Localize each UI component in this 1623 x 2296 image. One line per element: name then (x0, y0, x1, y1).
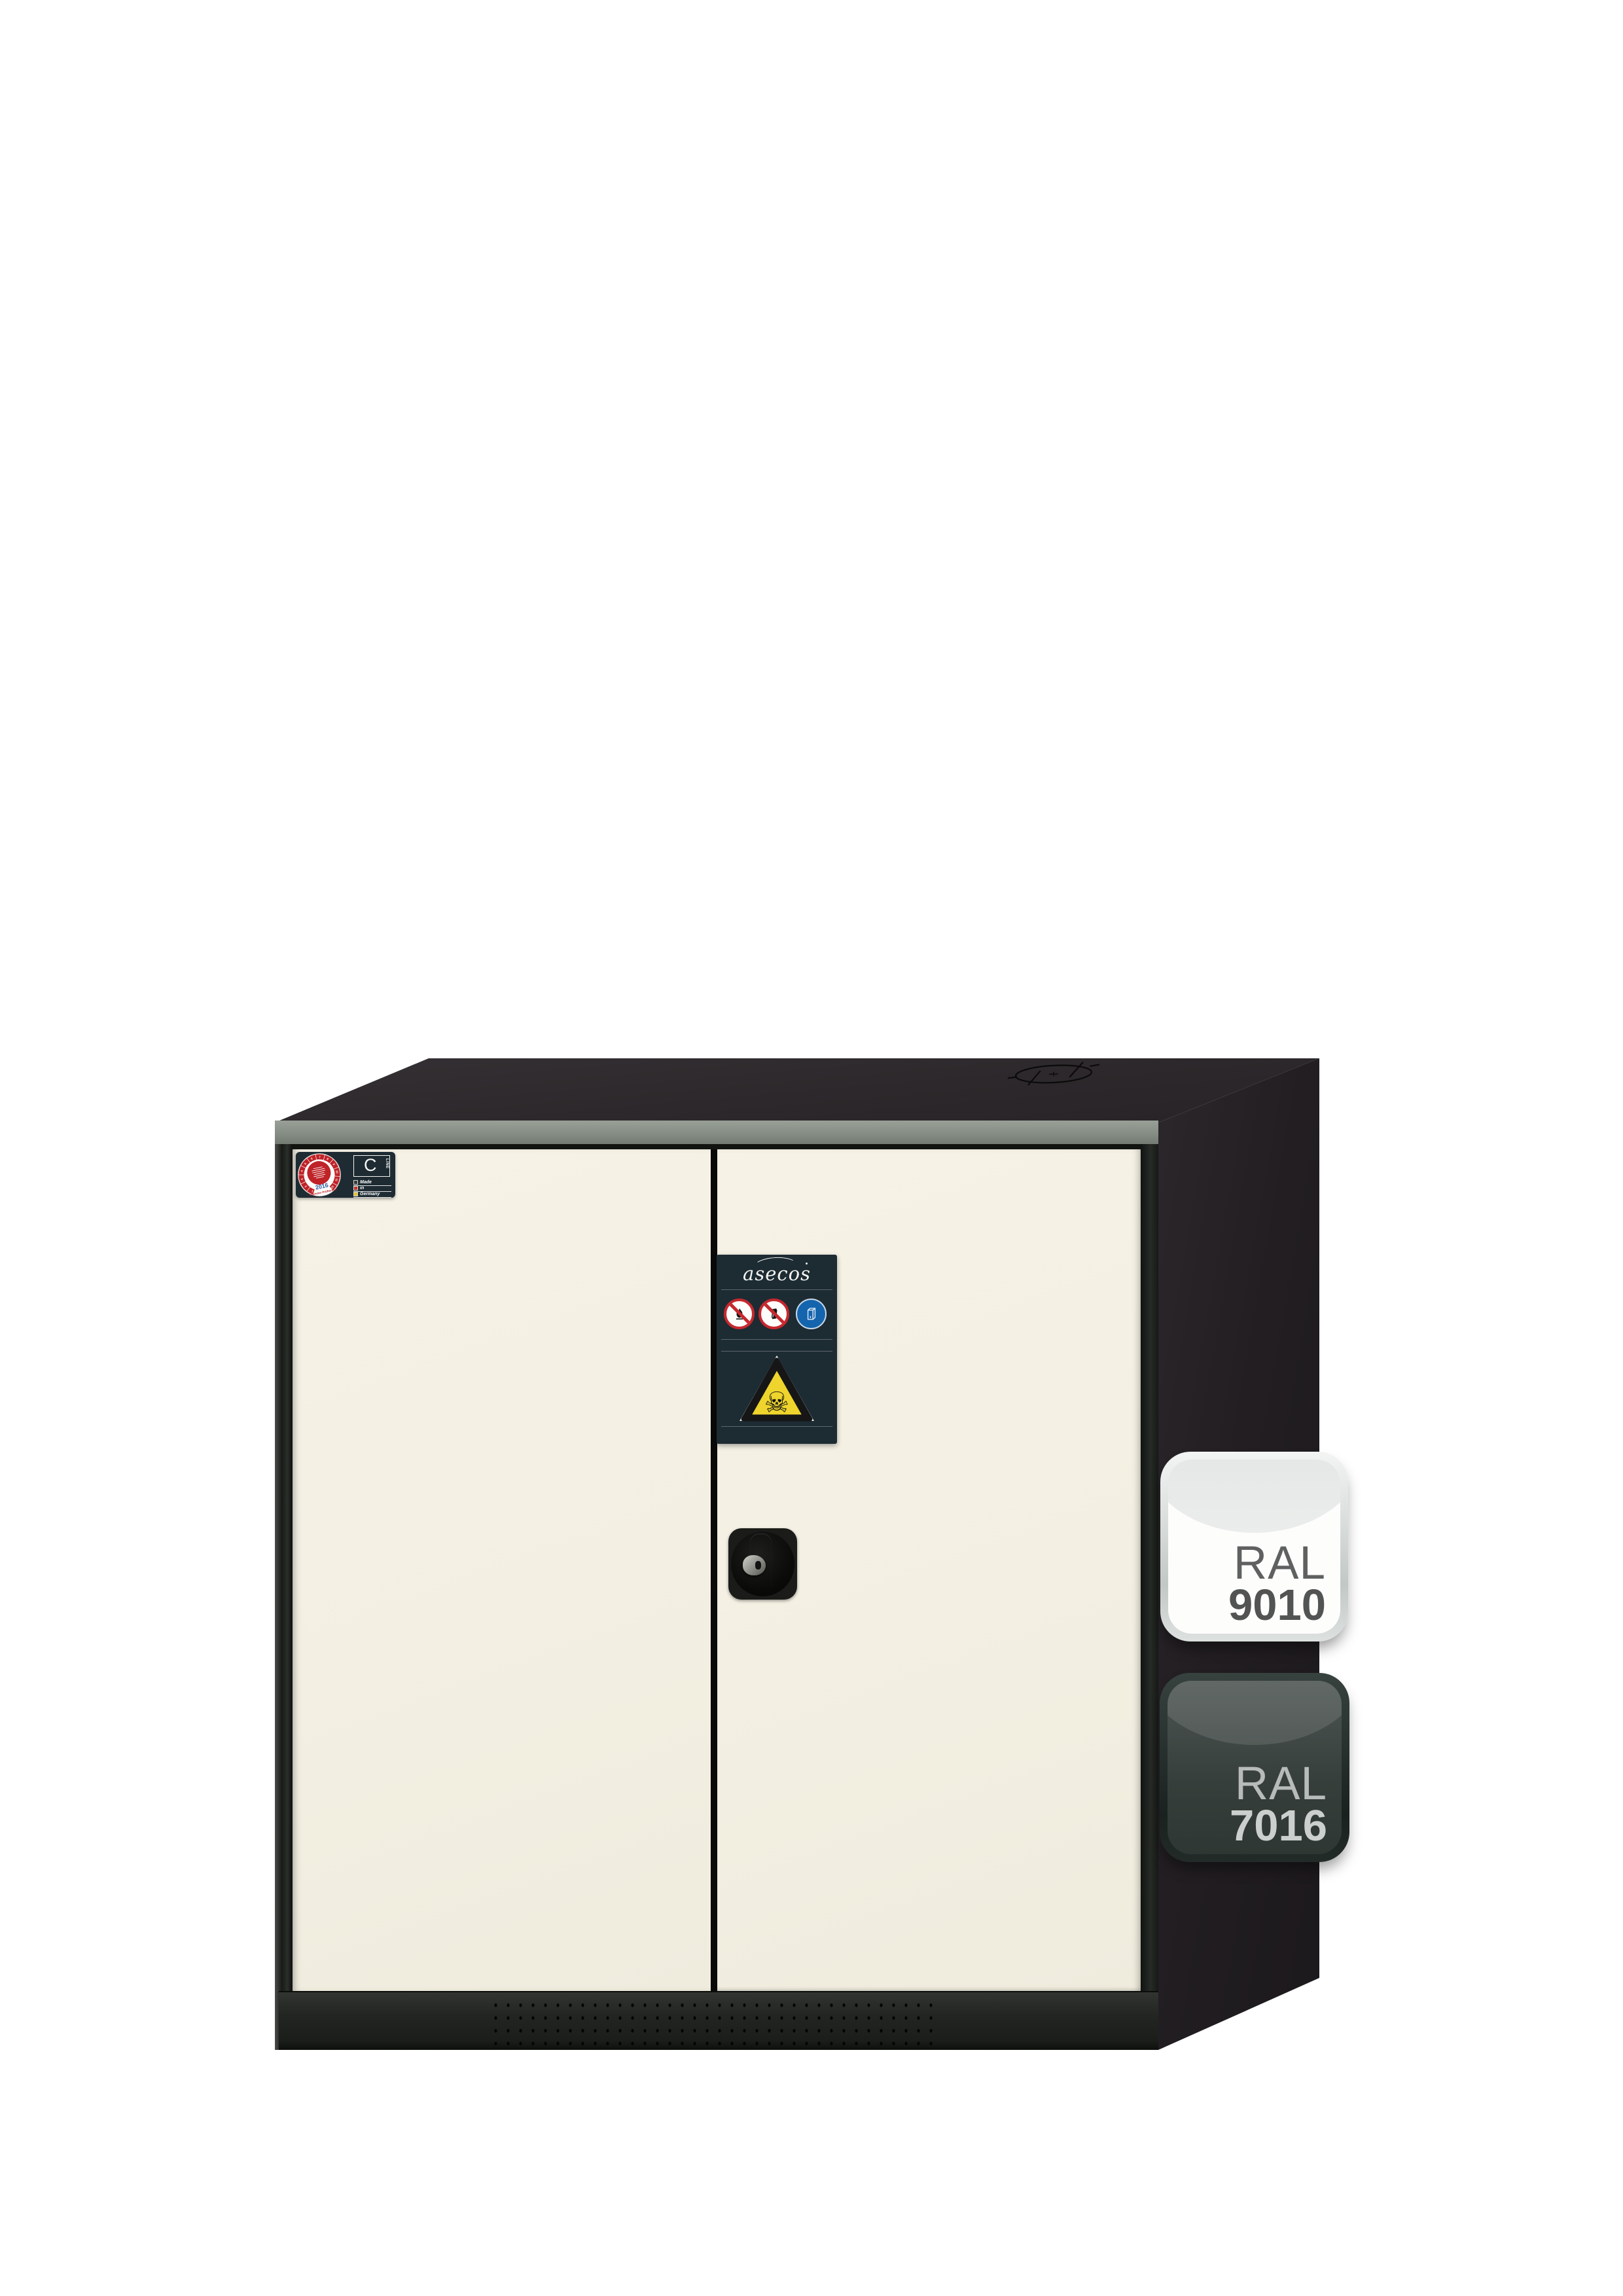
cabinet-top-face (275, 1058, 1319, 1122)
made-in-line3: Germany (360, 1192, 380, 1196)
plinth (279, 1991, 1158, 2050)
toxic-warning-triangle: ☠ (738, 1354, 815, 1422)
cabinet-top-trim (275, 1121, 1158, 1147)
ral-7016-swatch: RAL 7016 (1168, 1681, 1342, 1854)
c-line-suffix: LINE (385, 1158, 389, 1169)
ral-7016-prefix: RAL (1230, 1763, 1327, 1806)
ral-9010-swatch: RAL 9010 (1168, 1460, 1340, 1634)
cabinet-right-edge (1141, 1144, 1158, 2050)
brand-wordmark: asecos (717, 1263, 837, 1285)
door-lock-handle[interactable] (728, 1528, 797, 1600)
handle-recess (731, 1532, 794, 1596)
skull-crossbones-icon: ☠ (764, 1386, 790, 1419)
ral-9010-badge: RAL 9010 (1160, 1452, 1348, 1641)
product-photo-stage: 123456789101112 2016 Nächster Prüftermin (0, 0, 1623, 2296)
key-in-lock[interactable] (743, 1555, 766, 1575)
no-open-flame-icon (724, 1299, 755, 1329)
flag-black-square (353, 1180, 358, 1185)
ral-7016-badge: RAL 7016 (1160, 1673, 1349, 1862)
cabinet-left-edge (275, 1144, 293, 2050)
label-divider (721, 1351, 832, 1352)
inspection-seal: 123456789101112 2016 Nächster Prüftermin (297, 1153, 342, 1197)
label-divider (721, 1339, 832, 1340)
made-in-germany: Made in Germany (353, 1180, 391, 1198)
c-line-mark: C LINE (353, 1155, 390, 1177)
keep-cabinet-closed-icon (796, 1299, 827, 1329)
flag-gold-square (353, 1192, 358, 1196)
c-line-letter: C (364, 1155, 377, 1175)
door-left[interactable] (293, 1149, 711, 1991)
lifting-point-glyph (1008, 1060, 1099, 1088)
ral-9010-code: 9010 (1228, 1585, 1326, 1626)
ventilation-perforation (490, 1999, 941, 2051)
flag-red-square (353, 1186, 358, 1191)
label-divider (721, 1289, 832, 1290)
made-in-line2: in (360, 1186, 364, 1191)
inspection-label: 123456789101112 2016 Nächster Prüftermin (296, 1152, 395, 1198)
brand-pictogram-label: asecos (717, 1255, 837, 1444)
ral-9010-prefix: RAL (1228, 1542, 1326, 1585)
cabinet-front: 123456789101112 2016 Nächster Prüftermin (275, 1121, 1158, 2050)
no-fire-door-icon (758, 1299, 789, 1329)
made-in-line1: Made (360, 1180, 372, 1185)
ral-7016-code: 7016 (1230, 1806, 1327, 1846)
label-divider (721, 1426, 832, 1427)
